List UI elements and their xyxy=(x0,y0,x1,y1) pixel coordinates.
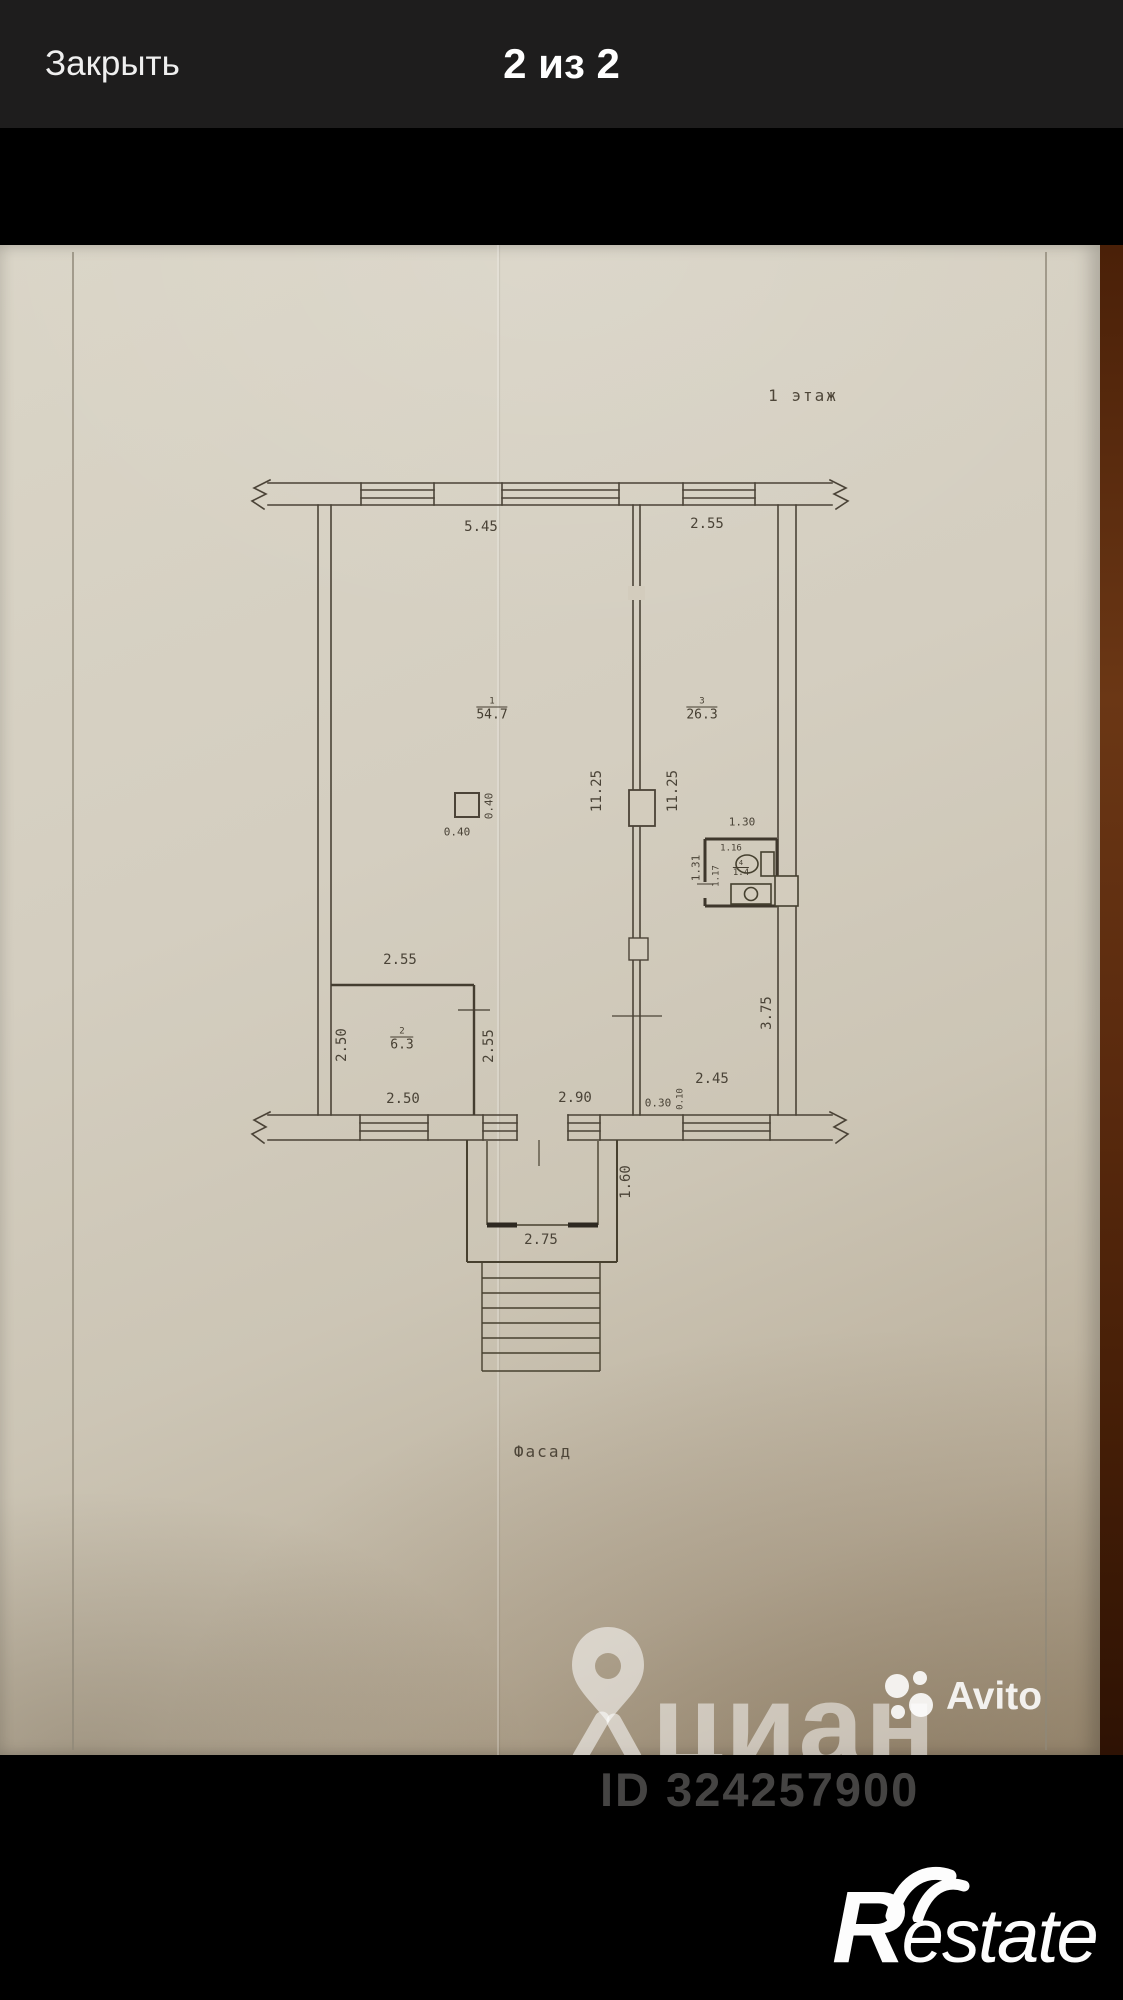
dim-label: 2.55 xyxy=(690,517,724,531)
room-number: 3 xyxy=(686,698,717,708)
room-area: 1.4 xyxy=(733,868,749,878)
dim-label: 2.50 xyxy=(386,1092,420,1106)
dim-label: 11.25 xyxy=(590,770,604,812)
listing-id: ID 324257900 xyxy=(600,1762,919,1817)
dim-label: 0.10 xyxy=(677,1088,686,1110)
room-label: 4 1.4 xyxy=(733,860,749,878)
dim-label: 0.40 xyxy=(484,793,495,820)
floor-title: 1 этаж xyxy=(768,388,838,404)
restate-swoosh-icon xyxy=(884,1864,970,1922)
photo-viewer-screen: Закрыть 2 из 2 циан Avito xyxy=(0,0,1123,2000)
room-area: 6.3 xyxy=(390,1038,413,1053)
dim-label: 2.90 xyxy=(558,1091,592,1105)
dim-label: 2.45 xyxy=(695,1072,729,1086)
dim-label: 1.60 xyxy=(619,1165,633,1199)
room-number: 1 xyxy=(476,698,507,708)
room-label: 2 6.3 xyxy=(390,1028,413,1053)
facade-label: Фасад xyxy=(514,1444,572,1460)
dim-label: 2.50 xyxy=(335,1028,349,1062)
dim-label: 2.55 xyxy=(482,1029,496,1063)
room-label: 1 54.7 xyxy=(476,698,507,723)
dim-label: 1.30 xyxy=(729,817,756,828)
table-background xyxy=(1100,245,1123,1755)
dim-label: 11.25 xyxy=(666,770,680,812)
paper-crease xyxy=(497,245,499,1755)
room-area: 26.3 xyxy=(686,708,717,723)
dim-label: 1.31 xyxy=(691,855,702,882)
dim-label: 0.30 xyxy=(645,1098,672,1109)
dim-label: 1.17 xyxy=(713,865,722,887)
floorplan-photo[interactable]: циан Avito xyxy=(0,245,1123,1755)
dim-label: 2.55 xyxy=(383,953,417,967)
dim-label: 5.45 xyxy=(464,520,498,534)
top-bar: Закрыть 2 из 2 xyxy=(0,0,1123,128)
room-label: 3 26.3 xyxy=(686,698,717,723)
dim-label: 0.40 xyxy=(444,827,471,838)
photo-counter: 2 из 2 xyxy=(0,0,1123,128)
paper-sheet xyxy=(0,245,1100,1755)
room-number: 2 xyxy=(390,1028,413,1038)
dim-label: 1.16 xyxy=(720,845,742,854)
dim-label: 3.75 xyxy=(760,996,774,1030)
dim-label: 2.75 xyxy=(524,1233,558,1247)
room-number: 4 xyxy=(733,860,749,868)
restate-logo: R estate xyxy=(832,1876,1097,1978)
room-area: 54.7 xyxy=(476,708,507,723)
